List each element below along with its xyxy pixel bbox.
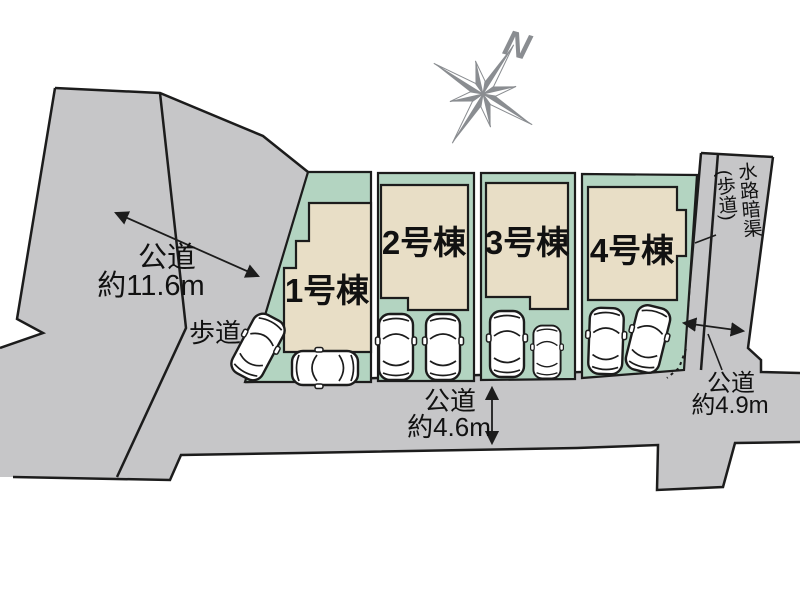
building-3-label: 3号棟: [485, 224, 570, 261]
car-icon: [487, 311, 528, 377]
car-icon: [292, 348, 358, 389]
car-icon: [423, 314, 464, 380]
site-plan-page: N 1号棟 2号棟 3号棟 4号棟 公道 約11.6m 歩道 公道 約4.6m …: [0, 0, 800, 598]
left-road-width: 約11.6m: [97, 269, 204, 302]
sidewalk-label: 歩道: [189, 318, 241, 348]
right-road-width: 約4.9m: [691, 392, 768, 419]
car-icon: [584, 307, 627, 374]
site-plan-drawing: N 1号棟 2号棟 3号棟 4号棟 公道 約11.6m 歩道 公道 約4.6m …: [0, 0, 800, 598]
bottom-road-width: 約4.6m: [407, 412, 491, 442]
building-2-label: 2号棟: [382, 224, 467, 261]
building-4-label: 4号棟: [590, 232, 675, 269]
north-label: N: [499, 21, 536, 68]
building-1-label: 1号棟: [285, 272, 370, 309]
car-icon: [376, 314, 417, 380]
car-icon: [531, 326, 564, 379]
